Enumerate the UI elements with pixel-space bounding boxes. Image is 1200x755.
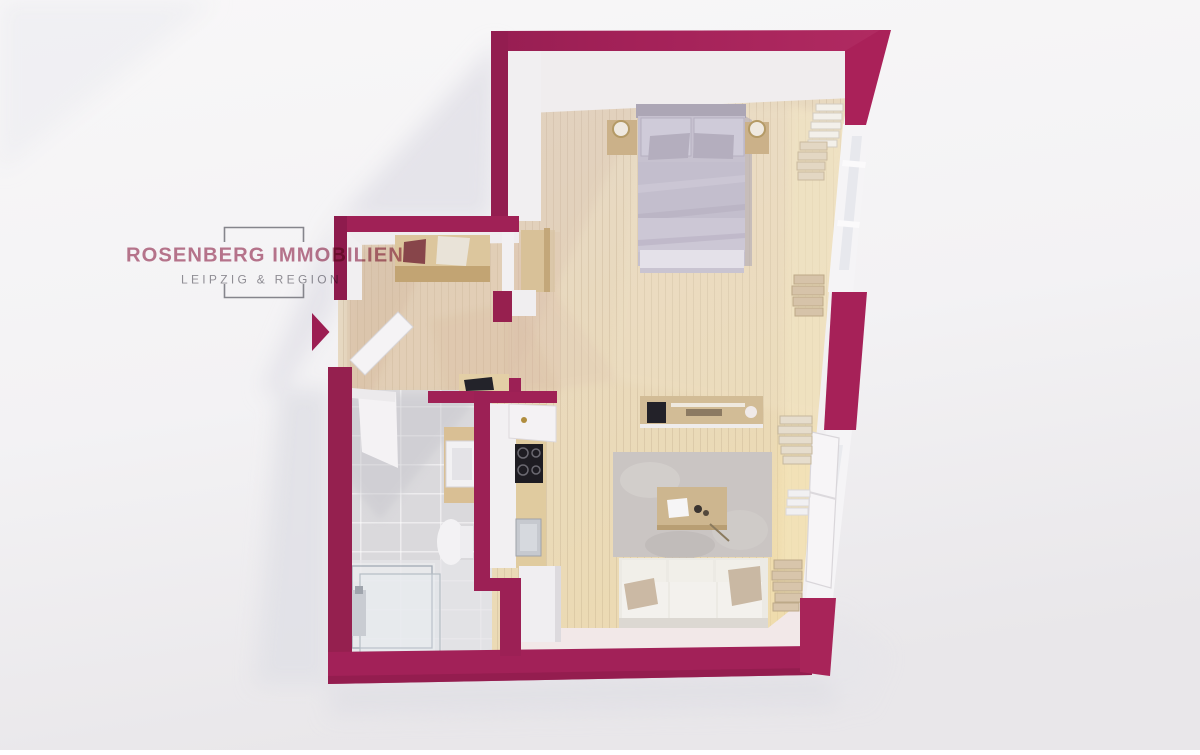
- svg-text:ROSENBERG IMMOBILIEN: ROSENBERG IMMOBILIEN: [126, 245, 404, 267]
- svg-text:LEIPZIG & REGION: LEIPZIG & REGION: [181, 273, 342, 287]
